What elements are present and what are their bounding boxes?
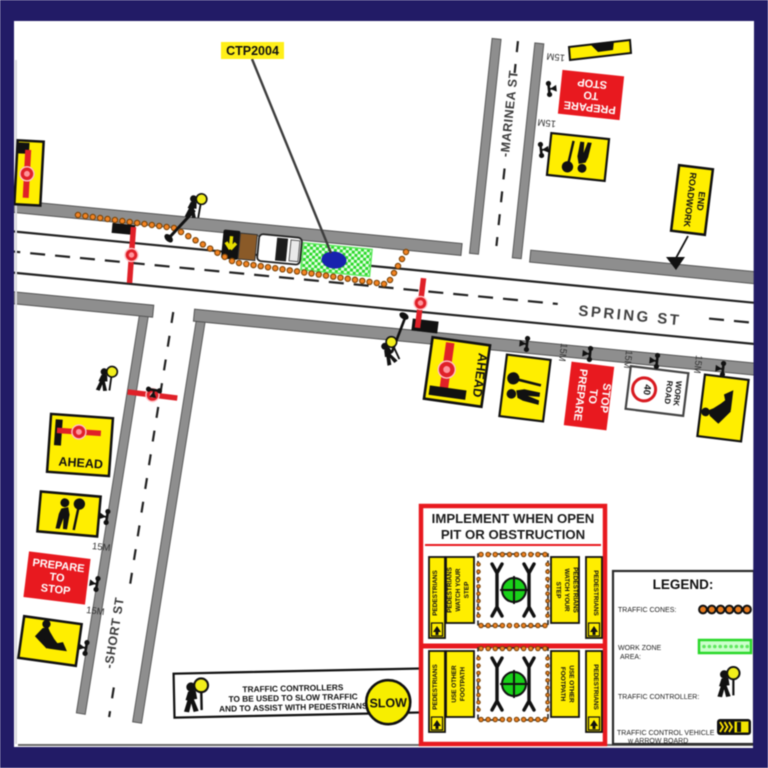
- svg-text:WATCH YOUR: WATCH YOUR: [455, 568, 462, 611]
- svg-text:USE OTHER: USE OTHER: [451, 665, 458, 703]
- svg-text:PEDESTRIANS: PEDESTRIANS: [447, 567, 454, 613]
- svg-text:FOOTPATH: FOOTPATH: [559, 667, 566, 702]
- svg-text:PEDESTRIANS: PEDESTRIANS: [432, 570, 439, 616]
- svg-text:15M: 15M: [546, 50, 566, 63]
- svg-text:15M: 15M: [691, 354, 704, 374]
- svg-text:PEDESTRIANS: PEDESTRIANS: [432, 664, 439, 710]
- svg-text:40: 40: [640, 384, 652, 396]
- svg-text:CTP2004: CTP2004: [226, 44, 279, 58]
- svg-text:15M: 15M: [91, 541, 111, 554]
- svg-text:SLOW: SLOW: [369, 696, 407, 711]
- svg-text:TRAFFIC CONTROL VEHICLE: TRAFFIC CONTROL VEHICLE: [617, 730, 715, 737]
- svg-text:USE OTHER: USE OTHER: [567, 665, 574, 703]
- svg-text:w ARROW BOARD: w ARROW BOARD: [627, 738, 688, 745]
- svg-text:FOOTPATH: FOOTPATH: [459, 667, 466, 702]
- svg-text:AREA:: AREA:: [620, 654, 641, 661]
- svg-text:STEP: STEP: [555, 582, 562, 599]
- svg-text:PEDESTRIANS: PEDESTRIANS: [592, 664, 599, 710]
- svg-text:15M: 15M: [556, 342, 569, 362]
- svg-text:15M: 15M: [85, 605, 105, 618]
- svg-text:TO: TO: [586, 388, 600, 405]
- svg-text:PIT OR OBSTRUCTION: PIT OR OBSTRUCTION: [441, 527, 585, 542]
- svg-text:PEDESTRIANS: PEDESTRIANS: [592, 570, 599, 616]
- svg-text:TRAFFIC CONES:: TRAFFIC CONES:: [618, 607, 676, 614]
- svg-text:WATCH YOUR: WATCH YOUR: [563, 568, 570, 611]
- svg-text:STEP: STEP: [464, 581, 471, 598]
- svg-text:TRAFFIC CONTROLLER:: TRAFFIC CONTROLLER:: [618, 694, 699, 701]
- svg-text:IMPLEMENT WHEN OPEN: IMPLEMENT WHEN OPEN: [432, 511, 595, 526]
- svg-text:PEDESTRIANS: PEDESTRIANS: [572, 567, 579, 613]
- svg-text:15M: 15M: [537, 116, 557, 129]
- svg-text:LEGEND:: LEGEND:: [653, 577, 714, 592]
- svg-text:WORK ZONE: WORK ZONE: [618, 645, 661, 652]
